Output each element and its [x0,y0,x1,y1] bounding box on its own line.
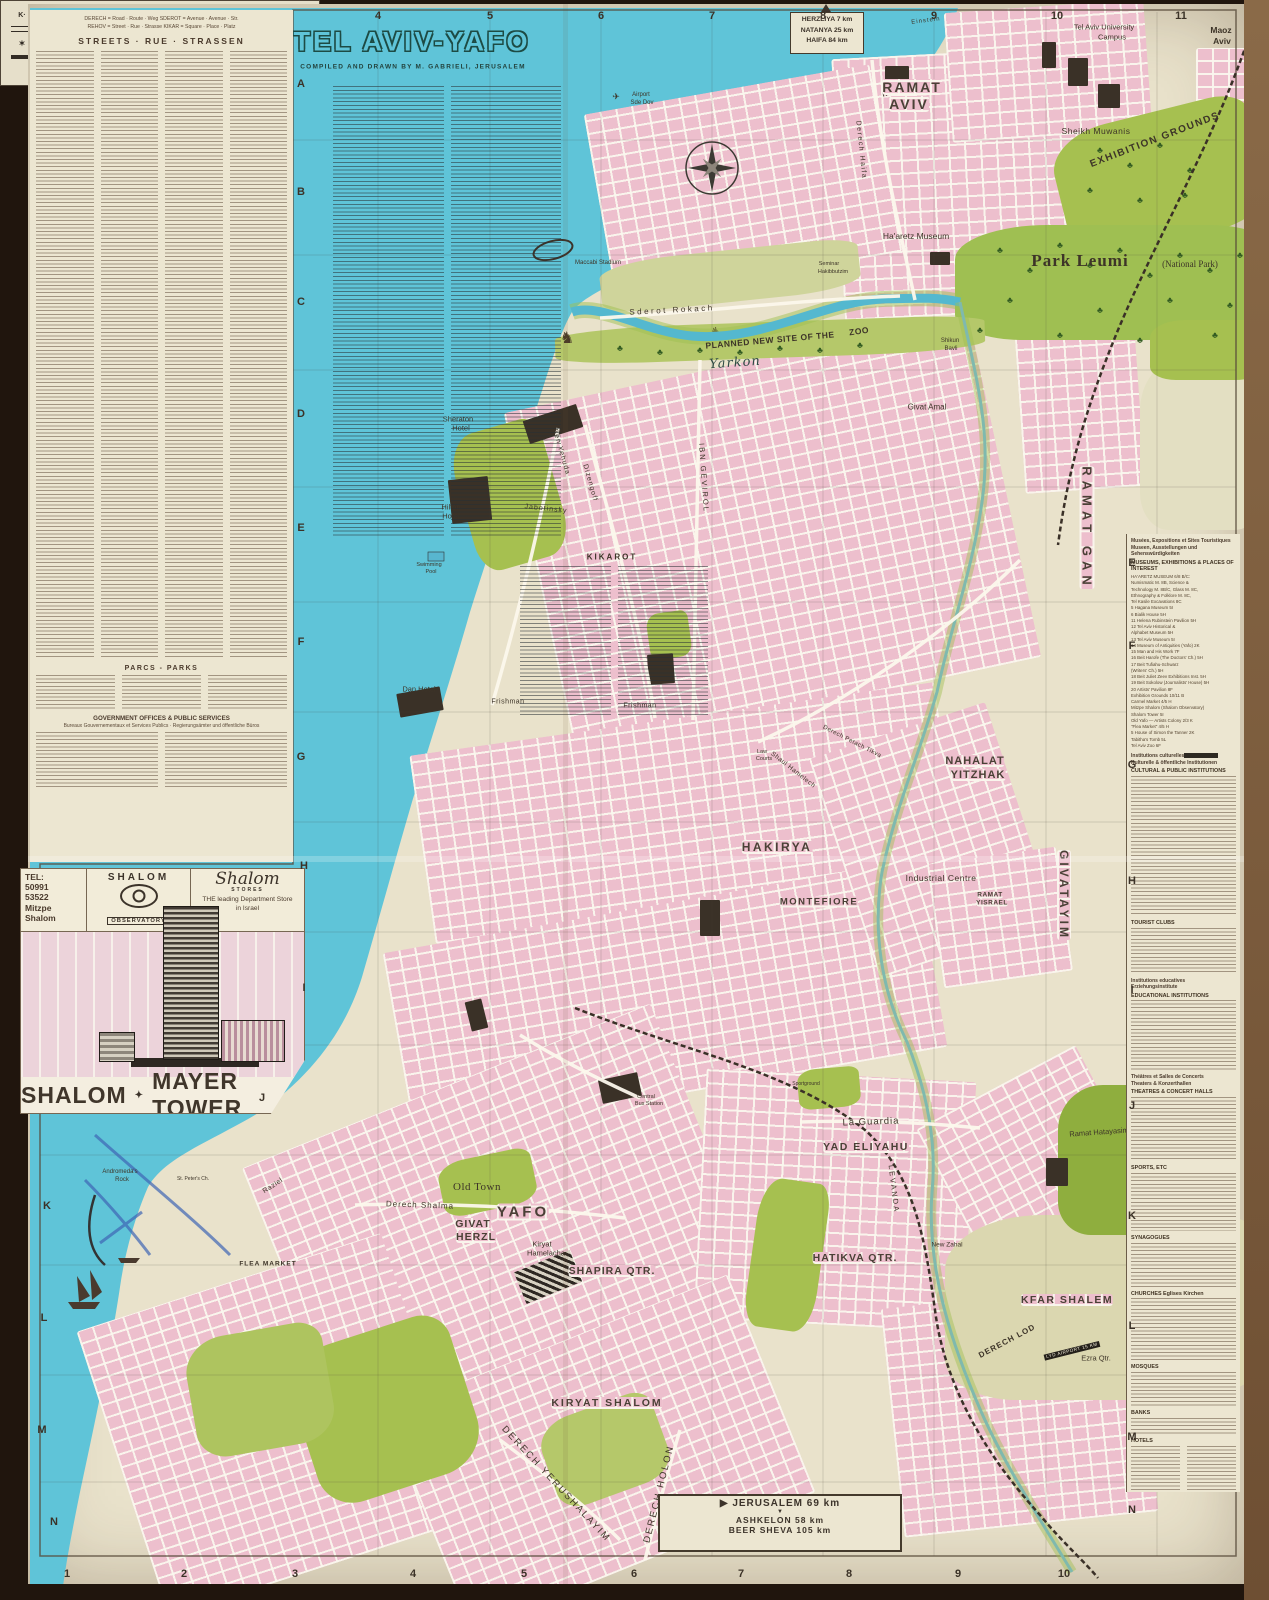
grid-letter: F [1129,640,1136,652]
grid-number-bottom: 7 [738,1568,744,1580]
grid-number-top: 7 [709,10,715,22]
grid-letter: K [43,1200,51,1212]
grid-letter: J [1129,1100,1135,1112]
grid-letter: I [1130,984,1133,996]
grid-letter: D [297,408,305,420]
grid-letter: H [1128,875,1136,887]
grid-number-bottom: 3 [292,1568,298,1580]
grid-number-top: 6 [598,10,604,22]
grid-letter: K [1128,1210,1136,1222]
grid-number-bottom: 9 [955,1568,961,1580]
grid-letter: M [1127,1431,1136,1443]
grid-number-top: 4 [375,10,381,22]
grid-number-top: 11 [1175,10,1187,22]
grid-letter: B [297,186,305,198]
grid-letter: E [297,522,304,534]
grid-number-top: 9 [931,10,937,22]
grid-letter: F [298,636,305,648]
grid-number-top: 5 [487,10,493,22]
grid-letter: M [37,1424,46,1436]
grid-number-bottom: 10 [1058,1568,1070,1580]
grid-letter: J [259,1092,265,1104]
map-photo: ♣♣♣♣♣♣♣♣♣♣♣♣♣♣♣♣♣♣♣♣♣♣♣♣♣♣♣♣♣♣♣♣♞♞ TEL A… [0,0,1269,1600]
grid-letter: L [41,1312,48,1324]
grid-number-bottom: 1 [64,1568,70,1580]
grid-number-bottom: 8 [846,1568,852,1580]
grid-letter: L [1129,1320,1136,1332]
grid-reference-layer: 456789101112345678910ABCDEFGHIJKLMNEFGHI… [0,0,1269,1600]
grid-letter: G [1128,759,1137,771]
grid-letter: H [300,860,308,872]
grid-letter: C [297,296,305,308]
grid-number-top: 10 [1051,10,1063,22]
grid-number-top: 8 [820,10,826,22]
grid-letter: E [1128,557,1135,569]
grid-number-bottom: 2 [181,1568,187,1580]
grid-number-bottom: 6 [631,1568,637,1580]
grid-number-bottom: 4 [410,1568,416,1580]
grid-letter: N [1128,1504,1136,1516]
grid-letter: G [297,751,306,763]
grid-letter: I [302,982,305,994]
grid-number-bottom: 5 [521,1568,527,1580]
grid-letter: A [297,78,305,90]
grid-letter: N [50,1516,58,1528]
